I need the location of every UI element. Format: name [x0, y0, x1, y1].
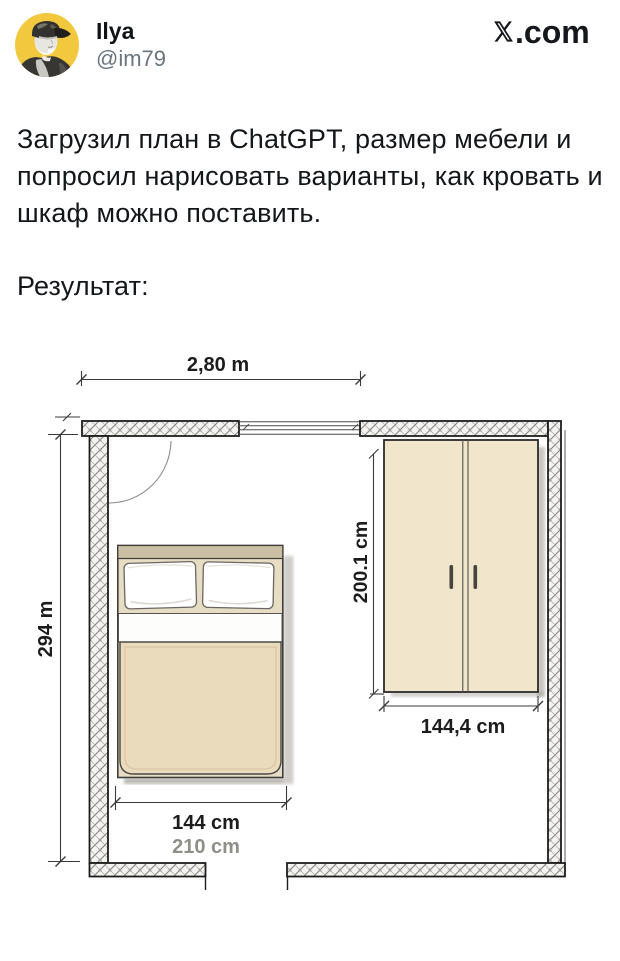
- svg-text:200.1 cm: 200.1 cm: [350, 521, 372, 603]
- svg-text:144,4 cm: 144,4 cm: [421, 716, 506, 738]
- svg-text:294 m: 294 m: [35, 601, 57, 658]
- svg-text:2,80 m: 2,80 m: [187, 354, 249, 376]
- svg-text:144 cm: 144 cm: [172, 812, 240, 834]
- svg-text:210 cm: 210 cm: [172, 836, 240, 858]
